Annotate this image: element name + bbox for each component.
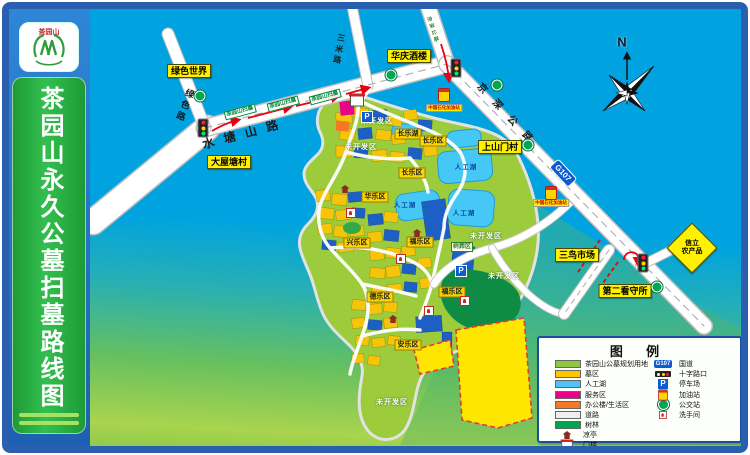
parking-icon: P (455, 265, 467, 277)
region-anle: 安乐区 (395, 340, 422, 351)
bus-stop-icon (492, 80, 503, 91)
lake-label: 人工湖 (453, 207, 476, 217)
legend-row: P停车场 (651, 380, 707, 389)
restroom-icon (460, 296, 470, 306)
title-banner: 茶园山永久公墓扫墓路线图 (12, 77, 86, 434)
route-chip: 茶园山扫墓 (309, 89, 342, 106)
region-huale: 华乐区 (362, 192, 389, 203)
region-tree-burial: 树葬区 (451, 242, 473, 252)
legend-row: 加油站 (651, 390, 707, 399)
swatch-lake (555, 380, 581, 388)
region-changle-a: 长乐区 (420, 136, 447, 147)
legend-row: 墓区 (555, 370, 648, 379)
undeveloped-label: 未开发区 (488, 271, 520, 281)
swatch-service (555, 391, 581, 399)
bus-stop-icon (652, 282, 663, 293)
legend-box: 图 例 茶园山公墓规划用地 墓区 人工湖 服务区 办公楼/生活区 道路 树林 凉… (537, 336, 742, 443)
legend-title: 图 例 (539, 341, 740, 360)
region-changle-lake: 长乐湖 (395, 129, 422, 140)
legend-label: 国道 (679, 359, 693, 369)
road-name-jingshen-small: 京深公路 (425, 16, 440, 45)
region-fule-a: 福乐区 (407, 237, 434, 248)
legend-label: 洗手间 (679, 410, 700, 420)
lake-label: 人工湖 (394, 199, 417, 209)
legend-label: 停车场 (679, 379, 700, 389)
legend-label: 十字路口 (679, 369, 707, 379)
legend-row: 洗手间 (651, 410, 707, 419)
legend-label: 加油站 (679, 390, 700, 400)
legend-row: 办公楼/生活区 (555, 400, 648, 409)
xinli-line1: 信立 (685, 240, 699, 248)
pavilion-icon (341, 185, 350, 193)
poster-title: 茶园山永久公墓扫墓路线图 (37, 86, 61, 410)
swatch-office (555, 401, 581, 409)
legend-label: 公交站 (679, 400, 700, 410)
bus-icon (651, 399, 675, 410)
restroom-icon (651, 410, 675, 420)
legend-row: G107国道 (651, 360, 707, 369)
poi-detention-house: 第二看守所 (598, 284, 651, 298)
poi-sinopec-label: 中国石化加油站 (426, 104, 462, 112)
legend-row: 树林 (555, 421, 648, 430)
poi-green-world: 绿色世界 (167, 64, 211, 78)
region-changle-b: 长乐区 (399, 168, 426, 179)
lake-label: 人工湖 (455, 161, 478, 171)
road-name-sanmi: 三米路 (331, 33, 348, 67)
pavilion-icon (555, 431, 579, 439)
g107-badge-icon: G107 (651, 360, 675, 368)
legend-label: 服务区 (585, 390, 606, 400)
legend-label: 树林 (585, 420, 599, 430)
legend-row: 道路 (555, 410, 648, 419)
legend-label: 办公楼/生活区 (585, 400, 629, 410)
traffic-light-icon (451, 59, 462, 78)
legend-label: 茶园山公墓规划用地 (585, 359, 648, 369)
map-poster: 水塘山路 绿色路 三米路 京深公路 京深公路 G107 茶园山扫墓 茶园山扫墓 … (0, 0, 750, 455)
gas-station-icon (545, 186, 557, 200)
route-chip: 茶园山扫墓 (224, 104, 257, 121)
xinli-line2: 农产品 (682, 248, 703, 256)
swatch-planning (555, 360, 581, 368)
traffic-light-icon (198, 119, 209, 138)
banner-stripe (19, 421, 79, 425)
legend-row: 公交站 (651, 400, 707, 409)
legend-row: 人工湖 (555, 380, 648, 389)
cemetery-logo: 茶园山 (19, 22, 79, 72)
legend-right-column: G107国道 十字路口 P停车场 加油站 公交站 洗手间 (651, 360, 707, 419)
compass-north-label: N (617, 35, 626, 50)
poi-shangshanmen-village: 上山门村 (478, 140, 522, 154)
region-dele: 德乐区 (367, 292, 394, 303)
restroom-icon (396, 254, 406, 264)
bus-stop-icon (386, 70, 397, 81)
route-chip: 茶园山扫墓 (267, 96, 300, 113)
poi-huaqing: 华庆酒楼 (387, 49, 431, 63)
undeveloped-label: 未开发区 (470, 231, 502, 241)
crossroad-icon (651, 371, 675, 377)
g107-road-badge: G107 (549, 158, 577, 187)
legend-label: 墓区 (585, 369, 599, 379)
legend-label: 道路 (585, 410, 599, 420)
pavilion-icon (389, 315, 398, 323)
undeveloped-label: 未开发区 (376, 397, 408, 407)
legend-row: 茶园山公墓规划用地 (555, 360, 648, 369)
swatch-grave (555, 370, 581, 378)
gate-tower-icon (350, 96, 364, 107)
legend-label: 人工湖 (585, 379, 606, 389)
parking-icon: P (361, 111, 373, 123)
legend-row: 服务区 (555, 390, 648, 399)
gas-station-icon (438, 88, 450, 102)
legend-label: 凉亭 (583, 430, 597, 440)
legend-row: 门楼 (555, 441, 648, 450)
title-sidebar: 茶园山 茶园山永久公墓扫墓路线图 (9, 9, 90, 446)
poi-sinopec-label: 中国石化加油站 (533, 199, 569, 207)
poi-xinli-farm-products: 信立 农产品 (667, 223, 718, 274)
logo-graphic: 茶园山 (20, 23, 78, 71)
undeveloped-label: 未开发区 (345, 142, 377, 152)
road-name-shuitangshan: 水塘山路 (200, 113, 289, 152)
restroom-icon (346, 208, 356, 218)
gate-icon (555, 440, 579, 451)
legend-row: 十字路口 (651, 370, 707, 379)
road-name-lvse: 绿色路 (172, 87, 197, 125)
swatch-forest (555, 421, 581, 429)
legend-left-column: 茶园山公墓规划用地 墓区 人工湖 服务区 办公楼/生活区 道路 树林 凉亭 门楼 (555, 360, 648, 449)
bus-stop-icon (195, 91, 206, 102)
swatch-road (555, 411, 581, 419)
poi-dawutang-village: 大屋塘村 (207, 155, 251, 169)
poi-sanniao-market: 三鸟市场 (555, 248, 599, 262)
restroom-icon (424, 306, 434, 316)
bus-stop-icon (523, 140, 534, 151)
traffic-light-icon (638, 254, 649, 273)
region-xingle: 兴乐区 (344, 238, 371, 249)
legend-row: 凉亭 (555, 431, 648, 440)
banner-stripe (19, 413, 79, 417)
legend-label: 门楼 (583, 440, 597, 450)
